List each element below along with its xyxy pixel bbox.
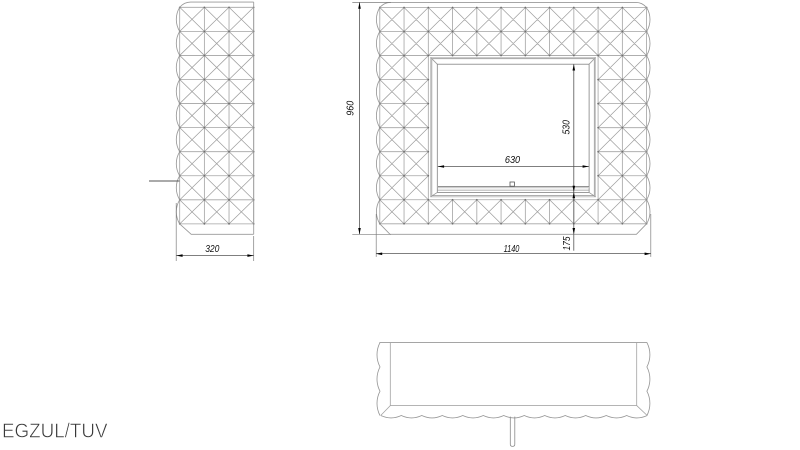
svg-text:960: 960 — [346, 101, 357, 116]
svg-text:320: 320 — [205, 244, 219, 255]
svg-text:530: 530 — [562, 120, 573, 135]
svg-text:630: 630 — [505, 155, 521, 166]
svg-text:EGZUL/TUV: EGZUL/TUV — [2, 421, 108, 443]
svg-text:175: 175 — [562, 236, 573, 250]
svg-text:1140: 1140 — [504, 244, 520, 255]
